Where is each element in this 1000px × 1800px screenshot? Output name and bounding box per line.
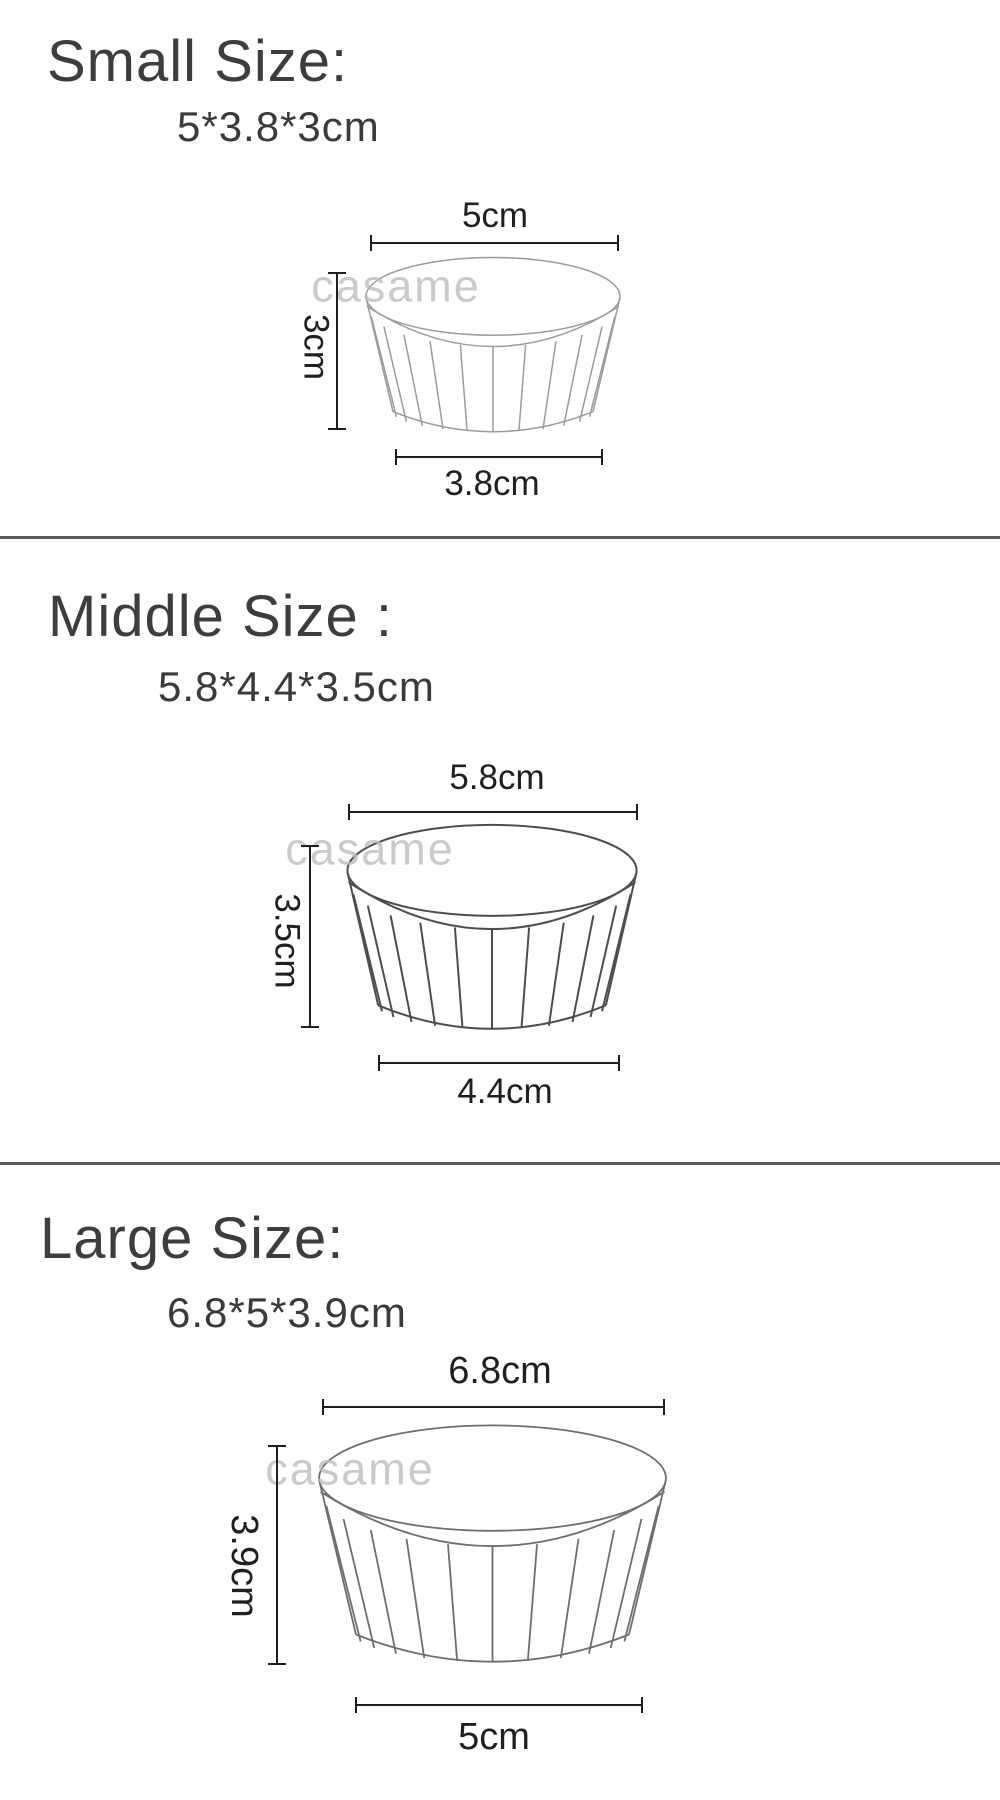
height-label-small: 3cm [299,314,334,380]
size-dimensions-text-large: 6.8*5*3.9cm [167,1292,407,1334]
product-size-chart: Small Size: 5*3.8*3cm 5cm casame 3cm 3.8… [0,0,1000,1800]
section-heading-large: Large Size: [40,1210,344,1268]
bottom-width-dimension-line-small [395,456,603,458]
top-width-label-middle: 5.8cm [449,760,544,795]
bottom-width-label-middle: 4.4cm [457,1074,552,1109]
height-label-large: 3.9cm [225,1514,263,1617]
watermark-large: casame [265,1447,435,1492]
bottom-width-label-large: 5cm [458,1718,530,1756]
size-dimensions-text-middle: 5.8*4.4*3.5cm [158,666,435,708]
bottom-width-label-small: 3.8cm [444,466,539,501]
top-width-dimension-line-small [370,242,619,244]
top-width-label-small: 5cm [462,198,528,233]
bottom-width-dimension-line-middle [378,1062,620,1064]
height-dimension-line-large [276,1445,278,1665]
height-label-middle: 3.5cm [270,893,305,988]
section-heading-small: Small Size: [47,33,348,91]
size-dimensions-text-small: 5*3.8*3cm [177,106,380,148]
top-width-dimension-line-middle [348,811,638,813]
height-dimension-line-middle [309,845,311,1028]
top-width-label-large: 6.8cm [448,1352,551,1390]
top-width-dimension-line-large [322,1406,665,1408]
height-dimension-line-small [336,272,338,430]
bottom-width-dimension-line-large [355,1704,643,1706]
section-divider-1 [0,536,1000,539]
section-heading-middle: Middle Size : [48,588,393,646]
section-divider-2 [0,1162,1000,1165]
